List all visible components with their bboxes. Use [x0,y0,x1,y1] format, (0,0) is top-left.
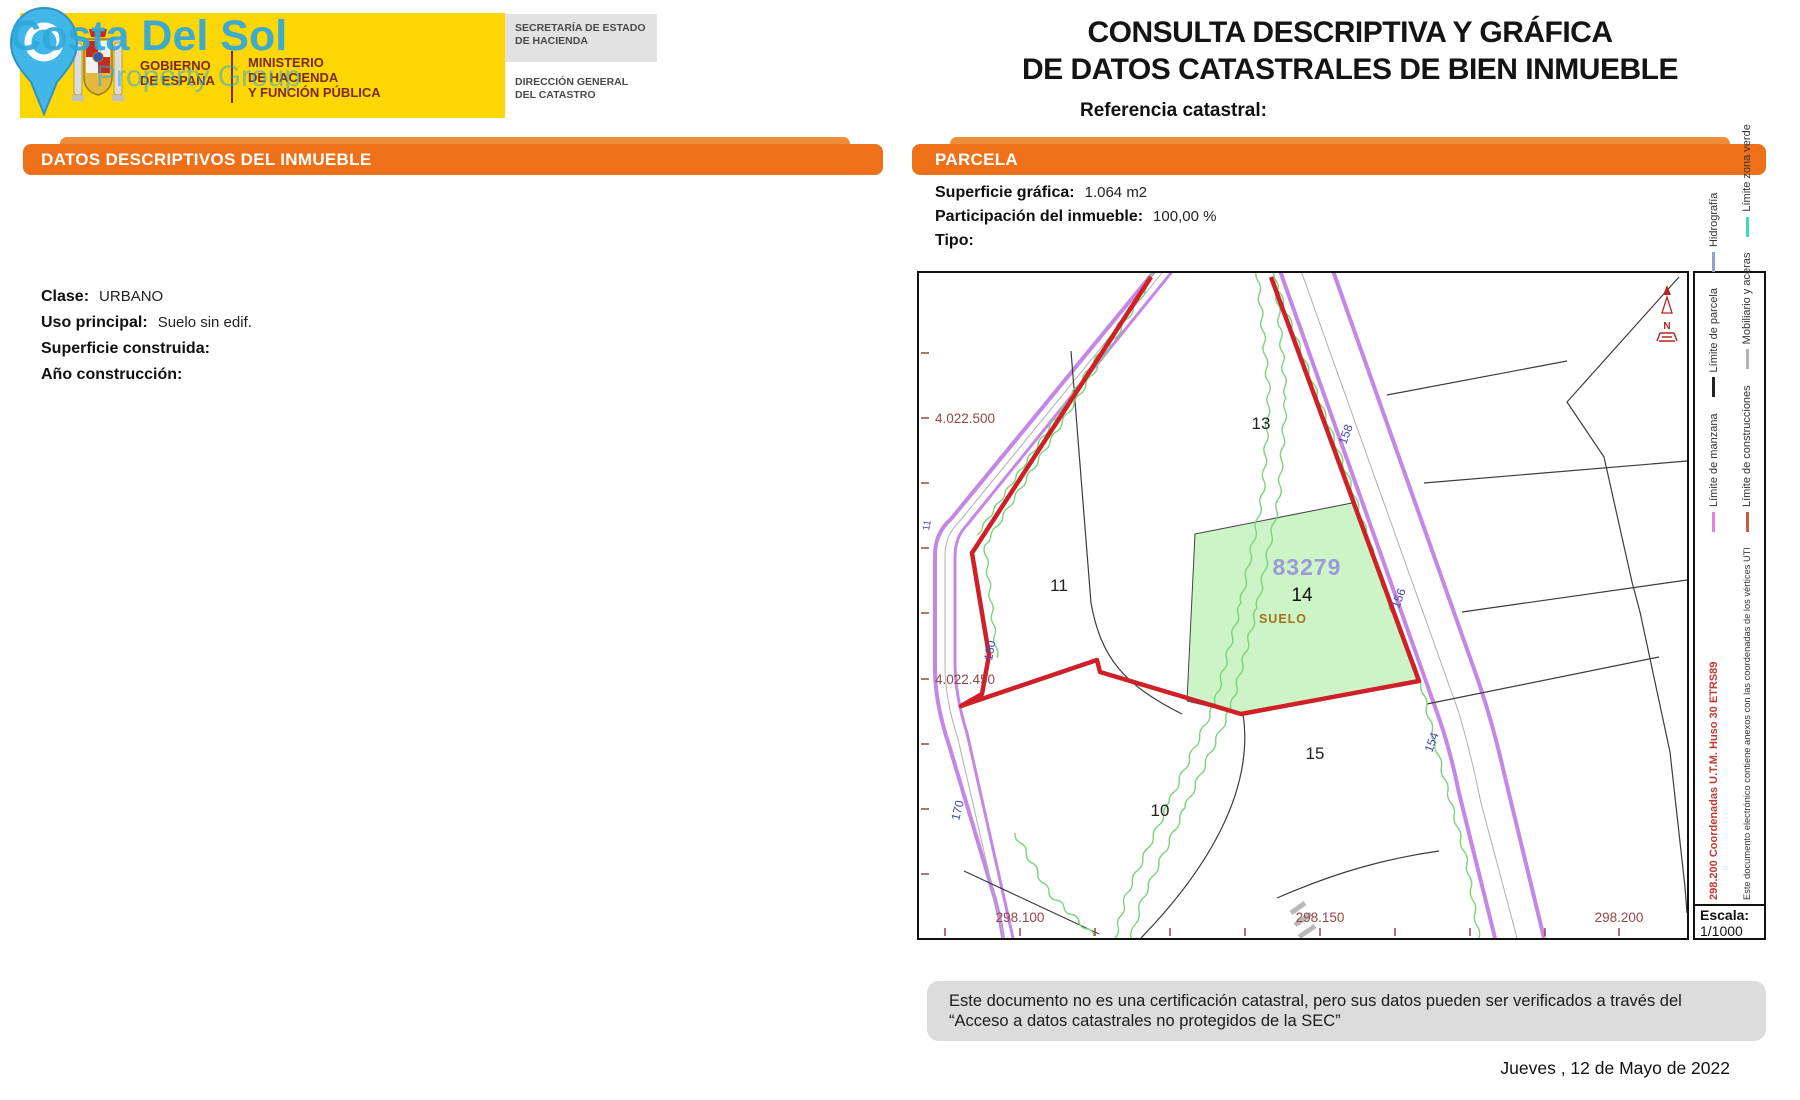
road-left-outer [935,273,1157,938]
legend-electronic-note: Este documento electrónico contiene anex… [1742,548,1752,900]
highlight-number-label: 14 [1291,585,1313,606]
field-uso-principal: Uso principal:Suelo sin edif. [41,314,252,332]
y-axis-label-top: 4.022.500 [935,411,995,426]
contour-11: 11 [921,519,934,532]
left-bar-text-emphasis: INMUEBLE [280,150,371,169]
hidrografia-swatch [1712,252,1715,272]
limite-manzana-swatch [1712,512,1715,532]
field-ano-construccion: Año construcción: [41,366,192,384]
north-compass-icon: N [1657,285,1677,341]
parcel-label-10: 10 [1151,801,1170,820]
parcel-label-13: 13 [1252,414,1271,433]
y-axis-label-bottom: 4.022.450 [935,672,995,687]
mobiliario-swatch [1746,349,1749,369]
zona-verde-swatch [1746,217,1749,237]
contour-154: 154 [1422,730,1442,754]
contour-180: 180 [981,639,998,661]
map-legend-panel: 298.200 Coordenadas U.T.M. Huso 30 ETRS8… [1693,271,1766,940]
scale-value: 1/1000 [1700,923,1759,939]
direccion-general-text: DIRECCIÓN GENERAL DEL CATASTRO [515,76,665,102]
scale-box: Escala: 1/1000 [1695,904,1764,938]
disclaimer-box: Este documento no es una certificación c… [927,981,1766,1041]
limite-construcciones-swatch [1746,512,1749,532]
legend-row-2: Este documento electrónico contiene anex… [1741,273,1753,906]
section-header-datos-descriptivos: DATOS DESCRIPTIVOS DEL INMUEBLE [23,144,883,175]
legend-item-limite-manzana: Límite de manzana [1708,413,1720,532]
cadastral-map[interactable]: N 4.022.500 4.022.450 298.100 298.150 29… [917,271,1689,940]
document-date: Jueves , 12 de Mayo de 2022 [1500,1058,1730,1079]
parcel-label-11: 11 [1050,576,1068,595]
section-header-parcela: PARCELA [912,144,1766,175]
svg-text:N: N [1663,321,1670,332]
road-left-inner [955,273,1175,938]
legend-item-limite-parcela: Límite de parcela [1708,288,1720,397]
legend-item-limite-construcciones: Límite de construcciones [1741,385,1753,532]
watermark-title: Costa Del Sol [10,12,287,61]
legend-item-hidrografia: Hidrografía [1708,193,1720,272]
secretaria-box: SECRETARÍA DE ESTADO DE HACIENDA [505,14,657,62]
field-clase: Clase:URBANO [41,288,163,306]
watermark-subtitle: Property Group [96,60,301,94]
field-superficie-construida: Superficie construida: [41,340,220,358]
limite-parcela-swatch [1712,377,1715,397]
legend-coordinates-note: 298.200 Coordenadas U.T.M. Huso 30 ETRS8… [1708,548,1720,900]
document-title: CONSULTA DESCRIPTIVA Y GRÁFICA DE DATOS … [935,14,1765,88]
field-participacion: Participación del inmueble:100,00 % [935,208,1216,226]
legend-rotated-content: 298.200 Coordenadas U.T.M. Huso 30 ETRS8… [1697,273,1764,906]
legend-item-limite-zona-verde: Límite zona verde [1741,124,1753,236]
field-superficie-grafica: Superficie gráfica:1.064 m2 [935,184,1147,202]
x-axis-label-1: 298.100 [996,910,1045,925]
left-bar-text: DATOS DESCRIPTIVOS DEL [41,150,280,169]
scale-label: Escala: [1700,907,1759,923]
x-axis-label-3: 298.200 [1595,910,1644,925]
legend-item-mobiliario: Mobiliario y aceras [1741,253,1753,370]
x-axis-label-2: 298.150 [1296,910,1345,925]
cadastral-document-page: GOBIERNO DE ESPAÑA MINISTERIO DE HACIEND… [0,0,1800,1100]
field-tipo: Tipo: [935,232,984,250]
referencia-catastral-label: Referencia catastral: [1080,100,1267,122]
contour-158: 158 [1336,422,1356,446]
parcel-label-15: 15 [1306,744,1325,763]
cadastral-map-svg: N 4.022.500 4.022.450 298.100 298.150 29… [919,273,1687,938]
highlight-use-label: SUELO [1259,612,1307,626]
contour-170: 170 [948,799,967,822]
legend-row-1: 298.200 Coordenadas U.T.M. Huso 30 ETRS8… [1708,273,1720,906]
highlight-ref-label: 83279 [1273,554,1342,580]
